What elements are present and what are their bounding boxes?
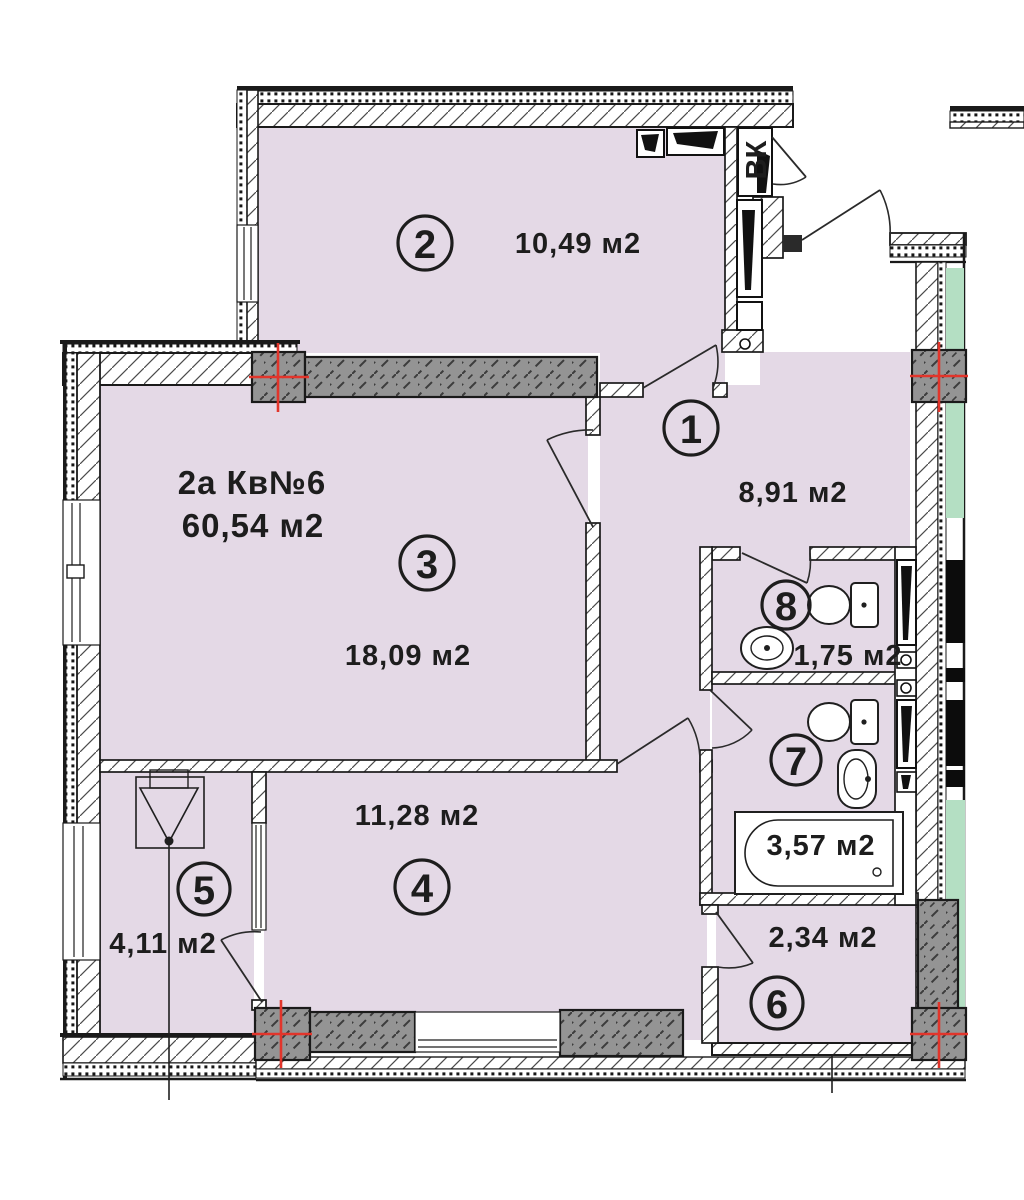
svg-text:7: 7 <box>785 740 807 784</box>
apartment-title: 2а Кв№6 <box>178 464 326 501</box>
svg-text:5: 5 <box>193 869 215 913</box>
window-room3-left <box>63 500 100 645</box>
svg-text:2: 2 <box>414 223 436 267</box>
svg-text:6: 6 <box>766 983 788 1027</box>
room-2-fill <box>258 125 725 353</box>
room-3-area: 18,09 м2 <box>345 640 471 672</box>
window-room4-bottom <box>415 1012 560 1052</box>
room-1-fill <box>600 385 910 560</box>
vk-shaft-label: ВК <box>741 140 773 179</box>
svg-text:8: 8 <box>775 585 797 629</box>
room-5-area: 4,11 м2 <box>109 928 216 960</box>
room-6-area: 2,34 м2 <box>768 922 877 954</box>
room-2-area: 10,49 м2 <box>515 228 641 260</box>
svg-text:4: 4 <box>411 867 434 911</box>
svg-text:1: 1 <box>680 408 702 452</box>
room-1-area: 8,91 м2 <box>738 477 847 509</box>
floor-plan-page: ВК <box>0 0 1024 1200</box>
floor-plan-drawing: ВК <box>0 0 1024 1200</box>
window-room5-room4 <box>252 823 266 930</box>
sink-room8 <box>741 627 793 669</box>
hall-fill-top <box>760 352 910 388</box>
room-7-area: 3,57 м2 <box>766 830 875 862</box>
sink-room7 <box>838 750 876 808</box>
room-4-area: 11,28 м2 <box>355 800 480 832</box>
window-room2-left <box>237 225 258 302</box>
toilet-room8 <box>808 583 878 627</box>
window-room5-left <box>63 823 100 960</box>
room-4-fill <box>264 772 707 1040</box>
toilet-room7 <box>808 700 878 744</box>
svg-text:3: 3 <box>416 543 438 587</box>
room-5-fill <box>98 772 254 1038</box>
room-3-fill <box>100 385 588 763</box>
room-8-area: 1,75 м2 <box>793 640 902 672</box>
apartment-total-area: 60,54 м2 <box>182 507 325 544</box>
room-2-fill-ext <box>600 352 725 386</box>
